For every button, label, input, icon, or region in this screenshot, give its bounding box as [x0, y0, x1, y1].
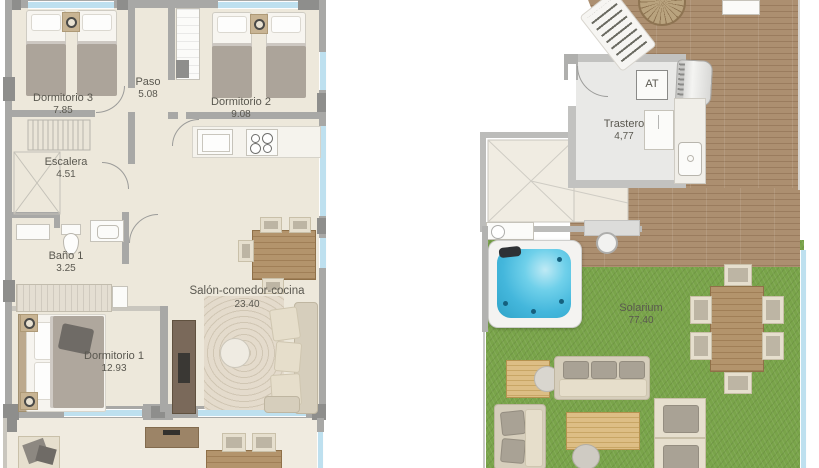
- solarium-armchair: [654, 438, 706, 468]
- at-text: AT: [637, 78, 667, 91]
- coffee-table-long: [566, 412, 640, 450]
- basin: [97, 225, 119, 239]
- room-label-salon: Salón-comedor-cocina 23.40: [168, 285, 326, 310]
- bath-vanity: [90, 220, 124, 242]
- chair-cushion: [728, 376, 748, 390]
- glass-balustrade: [800, 250, 807, 468]
- terrace-right-wall: [317, 418, 324, 432]
- room-label-escalera: Escalera 4.51: [28, 156, 104, 181]
- tv-unit: [172, 320, 196, 414]
- bed-pillow: [271, 16, 301, 33]
- dining-table: [252, 230, 316, 280]
- stove: [246, 129, 278, 156]
- jacuzzi-water: [497, 249, 571, 318]
- sofa-seat: [525, 409, 543, 467]
- at-unit-label: AT: [637, 78, 667, 91]
- sink-basin: [202, 134, 230, 152]
- bed-pillow: [31, 14, 61, 31]
- jet-icon: [531, 309, 536, 314]
- room-label-solarium: Solarium 77,40: [596, 302, 686, 327]
- bed-single: [266, 12, 306, 98]
- jet-icon: [503, 301, 508, 306]
- room-label-dormitorio-2: Dormitorio 2 9.08: [196, 96, 286, 121]
- burner-icon: [251, 134, 260, 143]
- chair-cushion: [242, 244, 250, 258]
- chair-cushion: [264, 221, 278, 229]
- solarium-dining-table: [710, 286, 764, 372]
- floor-plan-image: Dormitorio 3 7.85 Paso 5.08 Dormitorio 2…: [0, 0, 819, 468]
- solarium-chair: [690, 296, 712, 324]
- nightstand: [20, 314, 38, 332]
- left-plan: Dormitorio 3 7.85 Paso 5.08 Dormitorio 2…: [0, 0, 340, 468]
- pillar: [3, 280, 15, 302]
- terrace-glass-right: [317, 432, 324, 468]
- solarium-left-line: [483, 332, 485, 468]
- pouf-round: [572, 444, 600, 468]
- trastero-door-gap: [568, 64, 576, 106]
- bed-blanket: [77, 41, 117, 96]
- solarium-chair: [724, 372, 752, 394]
- wall-left: [5, 0, 12, 420]
- burner-icon: [250, 143, 261, 154]
- wall-dorm2-bottom-stub: [168, 112, 178, 119]
- terrace-chair: [222, 433, 246, 452]
- burner-icon: [262, 133, 273, 144]
- room-area: 23.40: [168, 299, 326, 311]
- bed-blanket: [266, 43, 306, 98]
- window-top-dorm3: [28, 1, 114, 9]
- bed-single: [26, 10, 66, 96]
- chair-cushion: [694, 336, 708, 356]
- sofa-cushion: [269, 306, 301, 342]
- sofa-pillow: [500, 438, 526, 464]
- tv-icon: [178, 353, 190, 383]
- terrace-chair: [252, 433, 276, 452]
- solarium-chair: [690, 332, 712, 360]
- dining-chair: [260, 217, 282, 233]
- bed-single: [77, 10, 117, 96]
- room-label-bano-1: Baño 1 3.25: [30, 250, 102, 275]
- round-basin: [491, 225, 505, 239]
- solarium-chair: [762, 296, 784, 324]
- jet-icon: [557, 257, 562, 262]
- room-area: 4.51: [28, 169, 104, 181]
- dining-chair: [238, 240, 254, 262]
- wall-salon-dorm1: [160, 306, 168, 412]
- wardrobe: [16, 284, 112, 312]
- terrace-console: [145, 427, 199, 448]
- room-name: Escalera: [28, 156, 104, 169]
- sofa-seat: [559, 379, 647, 397]
- pillar: [3, 77, 15, 101]
- skylight-wall-left: [480, 132, 486, 232]
- room-area: 9.08: [196, 109, 286, 121]
- at-unit-box: AT: [636, 70, 668, 100]
- armchair-cushion: [35, 445, 57, 465]
- armchair-cushion: [663, 405, 699, 433]
- bed-blanket: [212, 43, 252, 98]
- wall-dorm3-paso: [128, 0, 135, 88]
- bed-blanket: [26, 41, 66, 96]
- jacuzzi: [488, 240, 582, 328]
- roof-sink: [678, 142, 702, 176]
- nightstand: [62, 12, 80, 32]
- sofa-arm: [264, 396, 300, 413]
- lamp-icon: [254, 19, 265, 30]
- lamp-icon: [66, 17, 77, 28]
- chair-cushion: [766, 336, 780, 356]
- sofa-pillow: [591, 361, 617, 379]
- sofa-pillow: [563, 361, 589, 379]
- chair-cushion: [694, 300, 708, 320]
- sofa-three-seat: [554, 356, 650, 400]
- chair-cushion: [766, 300, 780, 320]
- bed-pillow: [82, 14, 112, 31]
- room-name: Baño 1: [30, 250, 102, 263]
- kitchen-sink: [197, 129, 233, 155]
- bed-pillow: [217, 16, 247, 33]
- ac-grill: [677, 63, 685, 99]
- window-top-dorm2: [218, 1, 298, 9]
- jet-icon: [559, 299, 564, 304]
- wardrobe-box: [112, 286, 128, 308]
- lamp-icon: [24, 396, 35, 407]
- sofa-pillow: [500, 410, 526, 436]
- closet-box: [176, 60, 189, 78]
- chair-cushion: [293, 221, 307, 229]
- burner-icon: [263, 144, 272, 153]
- solarium-chair: [724, 264, 752, 286]
- room-area: 77,40: [596, 315, 686, 327]
- room-name: Dormitorio 1: [76, 350, 152, 363]
- solarium-left-wall: [482, 226, 488, 332]
- terrace-left-edge: [3, 418, 7, 468]
- pillar: [317, 218, 326, 234]
- tv-icon: [163, 430, 180, 435]
- roof-equipment-box: [722, 0, 760, 15]
- solarium-armchair: [654, 398, 706, 438]
- room-area: 7.85: [18, 105, 108, 117]
- basin-counter: [486, 222, 534, 240]
- room-name: Paso: [126, 76, 170, 89]
- terrace-table: [206, 450, 282, 468]
- nightstand: [20, 392, 38, 410]
- room-name: Dormitorio 3: [18, 92, 108, 105]
- nightstand: [250, 14, 268, 34]
- room-label-paso: Paso 5.08: [126, 76, 170, 101]
- room-name: Dormitorio 2: [196, 96, 286, 109]
- wall-paso-dorm2: [168, 0, 175, 80]
- room-area: 5.08: [126, 89, 170, 101]
- terrace-armchair: [18, 436, 60, 468]
- right-plan: AT: [440, 0, 819, 468]
- solarium-chair: [762, 332, 784, 360]
- lamp-icon: [24, 318, 35, 329]
- room-area: 4,77: [586, 131, 662, 143]
- armchair-cushion: [663, 445, 699, 468]
- room-area: 3.25: [30, 263, 102, 275]
- sofa-two-seat: [494, 404, 546, 468]
- room-name: Solarium: [596, 302, 686, 315]
- skylight-wall-top: [482, 132, 570, 138]
- room-label-trastero: Trastero 4,77: [586, 118, 662, 143]
- bed-single: [212, 12, 252, 98]
- sofa-cushion: [274, 341, 303, 373]
- room-area: 12.93: [76, 363, 152, 375]
- deck-edge: [798, 0, 800, 190]
- drain-icon: [687, 155, 694, 162]
- room-label-dormitorio-1: Dormitorio 1 12.93: [76, 350, 152, 375]
- outdoor-shower: [596, 232, 618, 254]
- bath-shelf: [16, 224, 50, 240]
- chair-cushion: [226, 437, 242, 448]
- room-label-dormitorio-3: Dormitorio 3 7.85: [18, 92, 108, 117]
- window-right-salon-2: [319, 238, 327, 268]
- coffee-table-round: [220, 338, 250, 368]
- sofa-pillow: [619, 361, 645, 379]
- chair-cushion: [728, 268, 748, 282]
- chair-cushion: [256, 437, 272, 448]
- dining-chair: [289, 217, 311, 233]
- window-right-dorm2: [319, 52, 327, 90]
- room-name: Trastero: [586, 118, 662, 131]
- room-name: Salón-comedor-cocina: [168, 285, 326, 299]
